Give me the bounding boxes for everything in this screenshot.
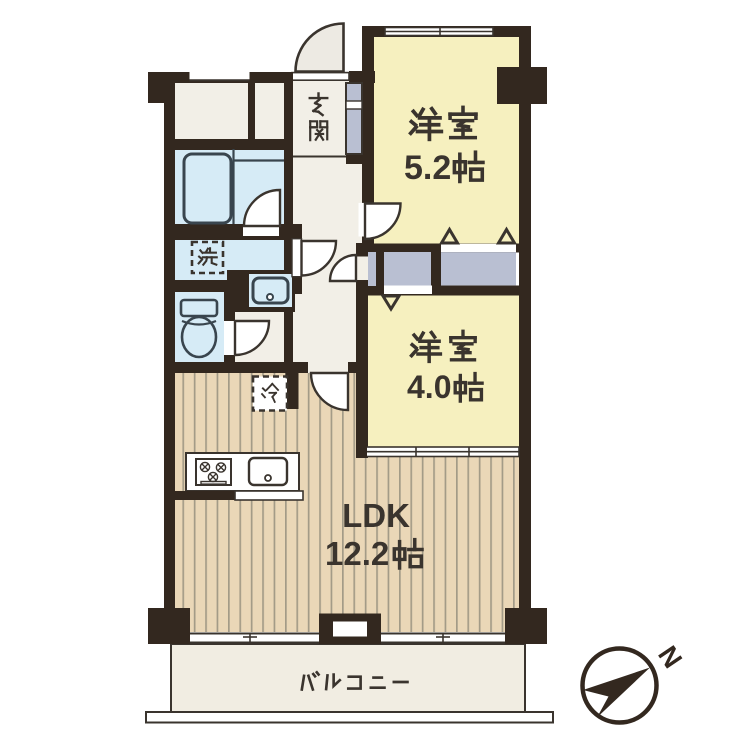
svg-text:5.2: 5.2 — [404, 149, 451, 187]
svg-text:12.2: 12.2 — [325, 535, 389, 572]
svg-text:LDK: LDK — [342, 497, 410, 534]
svg-text:4.0: 4.0 — [407, 369, 451, 405]
